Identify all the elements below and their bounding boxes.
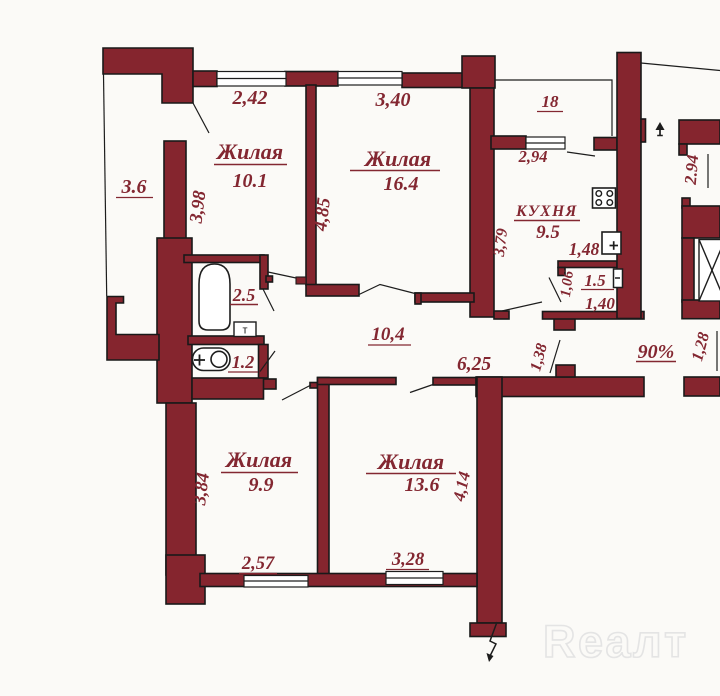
- svg-text:9.5: 9.5: [536, 222, 560, 243]
- svg-text:1.5: 1.5: [584, 271, 606, 290]
- svg-text:Жилая: Жилая: [363, 146, 431, 171]
- svg-text:2.5: 2.5: [232, 285, 256, 305]
- svg-text:2,94: 2,94: [518, 147, 548, 166]
- svg-text:2.94: 2.94: [681, 154, 703, 186]
- svg-text:Жилая: Жилая: [376, 449, 444, 474]
- svg-text:1.2: 1.2: [232, 352, 255, 372]
- svg-text:3.6: 3.6: [121, 176, 147, 198]
- svg-text:1,40: 1,40: [585, 294, 615, 313]
- svg-text:3,84: 3,84: [190, 472, 214, 508]
- svg-text:6,25: 6,25: [457, 354, 491, 375]
- svg-text:13.6: 13.6: [405, 474, 440, 496]
- svg-text:КУХНЯ: КУХНЯ: [515, 203, 578, 220]
- svg-text:Reaлт: Reaлт: [543, 616, 689, 667]
- svg-text:2,57: 2,57: [241, 554, 275, 574]
- svg-text:3,79: 3,79: [491, 228, 511, 259]
- svg-text:Жилая: Жилая: [215, 139, 283, 164]
- svg-text:90%: 90%: [638, 341, 675, 363]
- svg-text:т: т: [242, 325, 247, 337]
- svg-text:3,98: 3,98: [187, 190, 211, 226]
- svg-text:1,48: 1,48: [569, 239, 600, 259]
- svg-text:Жилая: Жилая: [224, 447, 292, 472]
- svg-text:10,4: 10,4: [371, 324, 404, 345]
- svg-text:9.9: 9.9: [249, 474, 274, 496]
- svg-text:16.4: 16.4: [384, 173, 419, 195]
- svg-text:10.1: 10.1: [233, 170, 268, 192]
- svg-text:1,06: 1,06: [558, 270, 577, 299]
- svg-text:4,85: 4,85: [310, 196, 335, 233]
- svg-text:18: 18: [542, 92, 560, 111]
- svg-text:3,28: 3,28: [391, 550, 424, 570]
- svg-text:2,42: 2,42: [232, 87, 268, 109]
- svg-text:3,40: 3,40: [375, 89, 411, 111]
